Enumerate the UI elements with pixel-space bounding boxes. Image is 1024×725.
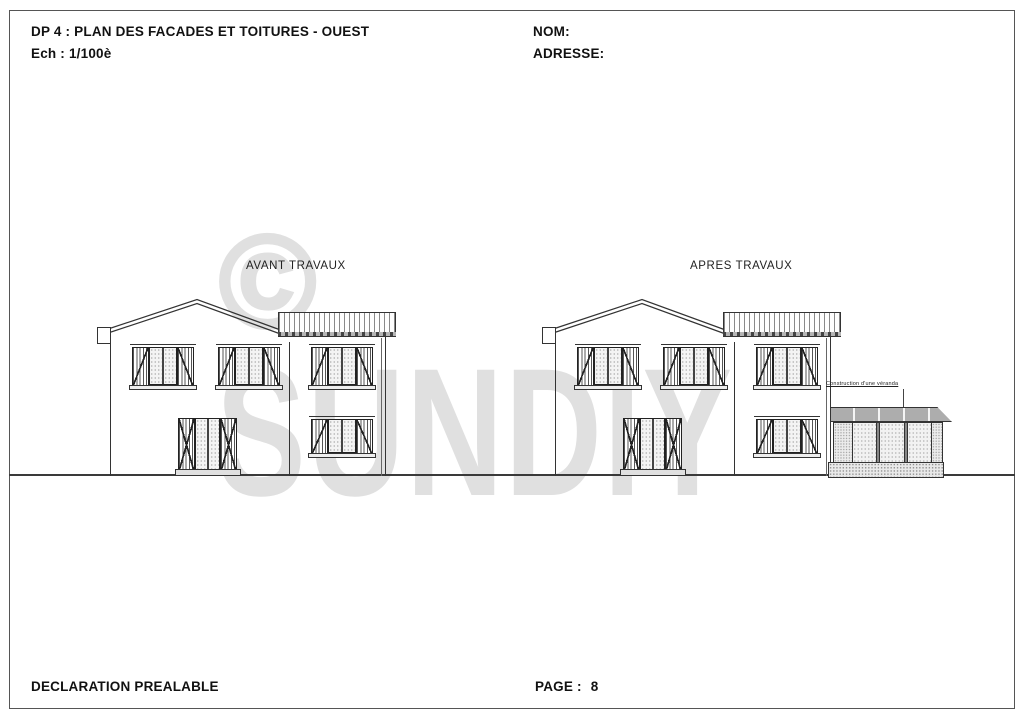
veranda-base-wall — [828, 462, 944, 478]
window-upper-right — [311, 347, 373, 385]
door-glass — [195, 418, 220, 470]
window-upper-middle — [218, 347, 280, 385]
window-glass — [680, 347, 708, 385]
veranda-pane — [908, 423, 931, 463]
veranda-pier — [834, 423, 853, 463]
shutter-left — [218, 347, 235, 387]
scale-note: Ech : 1/100è — [31, 46, 111, 61]
shutter-right — [801, 419, 818, 455]
veranda-pane — [880, 423, 903, 463]
shutter-left — [663, 347, 680, 387]
veranda-roof — [830, 407, 952, 422]
right-wall-line — [830, 336, 831, 476]
window-glass — [773, 347, 801, 385]
shutter-right — [801, 347, 818, 387]
roof-fascia — [278, 332, 396, 337]
french-door — [178, 418, 237, 470]
shutter-right — [708, 347, 725, 387]
house-after: Construction d'une véranda — [543, 298, 963, 476]
shutter-left — [132, 347, 149, 387]
veranda-annotation: Construction d'une véranda — [826, 381, 956, 387]
window-lower-right — [311, 419, 373, 453]
window-glass — [235, 347, 263, 385]
shutter-left — [577, 347, 594, 387]
window-glass — [594, 347, 622, 385]
downspout — [381, 338, 382, 476]
shutter-left — [756, 347, 773, 387]
gable-roof — [98, 298, 298, 340]
shutter-right — [177, 347, 194, 387]
shutter-right — [356, 419, 373, 455]
gable-roof — [543, 298, 743, 340]
veranda-pane — [853, 423, 876, 463]
shutter-left — [178, 418, 195, 472]
roof-eaves-band — [278, 312, 396, 333]
shutter-right — [356, 347, 373, 387]
door-threshold — [175, 469, 241, 476]
right-wall-line — [385, 336, 386, 476]
window-glass — [773, 419, 801, 453]
shutter-right — [263, 347, 280, 387]
shutter-left — [311, 347, 328, 387]
roof-fascia — [723, 332, 841, 337]
shutter-right — [665, 418, 682, 472]
name-label: NOM: — [533, 24, 570, 39]
footer-doc-type: DECLARATION PREALABLE — [31, 679, 219, 694]
house-before — [98, 298, 518, 476]
eave-gutter — [542, 327, 556, 344]
window-upper-left — [577, 347, 639, 385]
window-glass — [328, 347, 356, 385]
address-label: ADRESSE: — [533, 46, 604, 61]
window-glass — [328, 419, 356, 453]
shutter-left — [756, 419, 773, 455]
window-upper-right — [756, 347, 818, 385]
plan-sheet: © SUNDIY DP 4 : PLAN DES FACADES ET TOIT… — [0, 0, 1024, 725]
page-label: PAGE : — [535, 679, 582, 694]
shutter-left — [311, 419, 328, 455]
annotation-leader-line — [903, 389, 904, 408]
door-threshold — [620, 469, 686, 476]
french-door — [623, 418, 682, 470]
page-number: 8 — [591, 679, 599, 694]
door-glass — [640, 418, 665, 470]
shutter-right — [622, 347, 639, 387]
window-upper-left — [132, 347, 194, 385]
elevation-label-after: APRES TRAVAUX — [690, 260, 792, 272]
elevation-label-before: AVANT TRAVAUX — [246, 260, 346, 272]
roof-eaves-band — [723, 312, 841, 333]
veranda-pier — [931, 423, 942, 463]
shutter-left — [623, 418, 640, 472]
window-lower-right — [756, 419, 818, 453]
window-glass — [149, 347, 177, 385]
veranda-glazing — [833, 422, 943, 464]
footer-page: PAGE :8 — [535, 679, 598, 694]
window-upper-middle — [663, 347, 725, 385]
downspout — [826, 338, 827, 476]
shutter-right — [220, 418, 237, 472]
page-title: DP 4 : PLAN DES FACADES ET TOITURES - OU… — [31, 24, 369, 39]
eave-gutter — [97, 327, 111, 344]
